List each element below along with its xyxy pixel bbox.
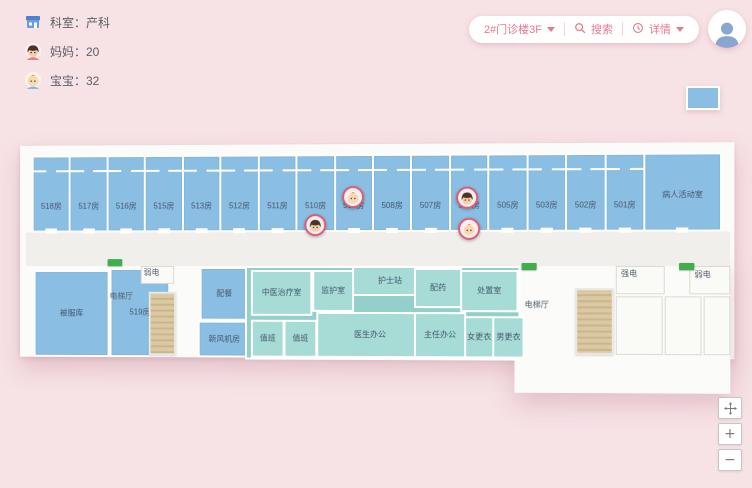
baby-marker[interactable] — [458, 218, 480, 240]
room[interactable]: 值班 — [251, 320, 285, 358]
door — [120, 228, 132, 233]
room-label: 513房 — [184, 200, 220, 211]
area-label: 弱电 — [694, 269, 710, 280]
door — [502, 228, 514, 233]
ward-room[interactable]: 517房 — [69, 155, 108, 232]
room-label: 515房 — [146, 201, 182, 212]
room[interactable]: 男更衣 — [492, 316, 524, 358]
area-label: 弱电 — [144, 267, 160, 278]
babies-stat: 宝宝：32 — [24, 70, 110, 90]
door — [348, 228, 360, 233]
department-stat: 科室：产科 — [24, 12, 110, 32]
room-label: 505房 — [490, 200, 527, 211]
exit-sign-icon — [108, 259, 123, 266]
app-background: { "colors": { "background": "#f7e2e6", "… — [0, 0, 752, 488]
annex-room[interactable] — [686, 86, 720, 110]
move-icon — [724, 402, 737, 415]
building-selector[interactable]: 2#门诊楼3F — [475, 21, 564, 37]
room-label: 值班 — [259, 334, 277, 343]
area-label: 电梯厅 — [110, 291, 133, 302]
map-controls: + − — [718, 397, 742, 471]
room[interactable]: 监护室 — [312, 270, 354, 312]
zoom-in-button[interactable]: + — [718, 423, 742, 445]
chevron-down-icon — [676, 27, 684, 32]
room[interactable]: 女更衣 — [464, 316, 494, 358]
ward-room[interactable]: 508房 — [372, 154, 412, 232]
room-label: 502房 — [567, 199, 604, 210]
door — [272, 228, 284, 233]
department-icon — [24, 13, 42, 31]
room-label: 518房 — [34, 201, 69, 212]
ward-room[interactable]: 512房 — [220, 155, 260, 233]
room-label: 被服库 — [59, 309, 84, 318]
room-label: 男更衣 — [495, 333, 521, 342]
ward-room[interactable]: 502房 — [565, 153, 606, 232]
details-label: 详情 — [649, 21, 671, 37]
ward-room[interactable]: 518房 — [32, 155, 71, 232]
room-label: 516房 — [108, 201, 144, 212]
pan-button[interactable] — [718, 397, 742, 419]
utility-room[interactable] — [704, 296, 731, 355]
utility-room[interactable] — [616, 296, 663, 355]
room[interactable]: 处置室 — [460, 270, 518, 312]
exit-sign-icon — [679, 263, 694, 270]
room[interactable]: 被服库 — [34, 270, 110, 357]
room-label: 监护室 — [320, 286, 346, 295]
area-label: 强电 — [621, 268, 637, 279]
ward-room[interactable]: 503房 — [526, 153, 567, 232]
mom-icon — [24, 42, 42, 60]
ward-room[interactable]: 516房 — [107, 155, 147, 232]
details-button[interactable]: 详情 — [623, 21, 693, 37]
room-label: 中医治疗室 — [261, 288, 303, 297]
door — [46, 229, 58, 234]
details-icon — [632, 22, 644, 37]
room-label: 医生办公 — [353, 330, 387, 339]
door — [619, 228, 631, 233]
ward-room[interactable]: 513房 — [182, 155, 222, 233]
zoom-out-button[interactable]: − — [718, 449, 742, 471]
room[interactable]: 新风机房 — [198, 321, 251, 358]
map-overlays: 电梯厅弱电电梯厅强电弱电 — [24, 138, 734, 142]
chevron-down-icon — [547, 27, 555, 32]
stairs — [149, 292, 176, 356]
baby-marker[interactable] — [342, 186, 364, 208]
ward-room[interactable]: 507房 — [410, 154, 451, 232]
user-avatar[interactable] — [708, 10, 746, 48]
toolbar-pill: 2#门诊楼3F 搜索 详情 — [469, 16, 699, 43]
search-label: 搜索 — [591, 21, 613, 37]
door — [196, 228, 208, 233]
person-icon — [712, 18, 742, 48]
search-button[interactable]: 搜索 — [565, 21, 622, 37]
door — [83, 228, 95, 233]
moms-text: 妈妈：20 — [50, 43, 99, 60]
corridor — [26, 231, 730, 266]
lower-rooms: 被服库519房配餐新风机房中医治疗室监护室护士站值班值班医生办公配药处置室主任办… — [24, 138, 734, 142]
door — [386, 228, 398, 233]
room-label: 病人活动室 — [645, 189, 720, 200]
room-label: 新风机房 — [208, 334, 242, 343]
toolbar: 2#门诊楼3F 搜索 详情 — [469, 10, 746, 48]
room-label: 508房 — [374, 200, 410, 211]
room[interactable]: 配餐 — [200, 267, 249, 321]
ward-room[interactable]: 501房 — [604, 153, 645, 232]
room-label: 511房 — [259, 200, 295, 211]
room-label: 507房 — [412, 200, 449, 211]
room-label: 护士站 — [377, 276, 403, 285]
stairs — [575, 288, 614, 355]
door — [425, 228, 437, 233]
ward-room[interactable]: 病人活动室 — [643, 152, 722, 231]
ward-room[interactable]: 515房 — [144, 155, 184, 232]
ward-room[interactable]: 505房 — [488, 153, 529, 232]
baby-icon — [24, 71, 42, 89]
search-icon — [574, 22, 586, 37]
door — [676, 227, 688, 232]
building-selector-value: 2#门诊楼3F — [484, 21, 542, 37]
mom-marker[interactable] — [456, 187, 478, 209]
door — [158, 228, 170, 233]
room-label: 值班 — [291, 334, 309, 343]
room-label: 512房 — [222, 200, 258, 211]
door — [541, 228, 553, 233]
floor-map[interactable]: 518房517房516房515房513房512房511房510房509房508房… — [24, 138, 734, 398]
room[interactable]: 中医治疗室 — [251, 270, 312, 316]
door — [234, 228, 246, 233]
moms-stat: 妈妈：20 — [24, 41, 110, 61]
exit-sign-icon — [522, 263, 537, 270]
babies-text: 宝宝：32 — [50, 72, 99, 89]
stats-panel: 科室：产科 妈妈：20 宝宝：32 — [24, 12, 110, 99]
room[interactable]: 配药 — [414, 268, 462, 308]
room-label: 配餐 — [215, 289, 233, 298]
ward-room-row: 518房517房516房515房513房512房511房510房509房508房… — [32, 152, 722, 232]
mom-marker[interactable] — [304, 214, 326, 236]
utility-room[interactable] — [665, 296, 702, 355]
room-label: 主任办公 — [423, 331, 457, 340]
room[interactable]: 主任办公 — [414, 312, 466, 358]
room[interactable]: 值班 — [284, 320, 318, 358]
department-text: 科室：产科 — [50, 14, 110, 31]
room-label: 处置室 — [476, 286, 502, 295]
area-label: 电梯厅 — [525, 299, 549, 310]
room-label: 女更衣 — [466, 333, 492, 342]
room-label: 517房 — [71, 201, 107, 212]
door — [580, 228, 592, 233]
room-label: 501房 — [606, 199, 643, 210]
room[interactable]: 医生办公 — [316, 312, 424, 358]
room-label: 配药 — [429, 283, 447, 292]
room-label: 503房 — [528, 199, 565, 210]
ward-room[interactable]: 511房 — [257, 154, 297, 232]
room-label: 510房 — [297, 200, 333, 211]
